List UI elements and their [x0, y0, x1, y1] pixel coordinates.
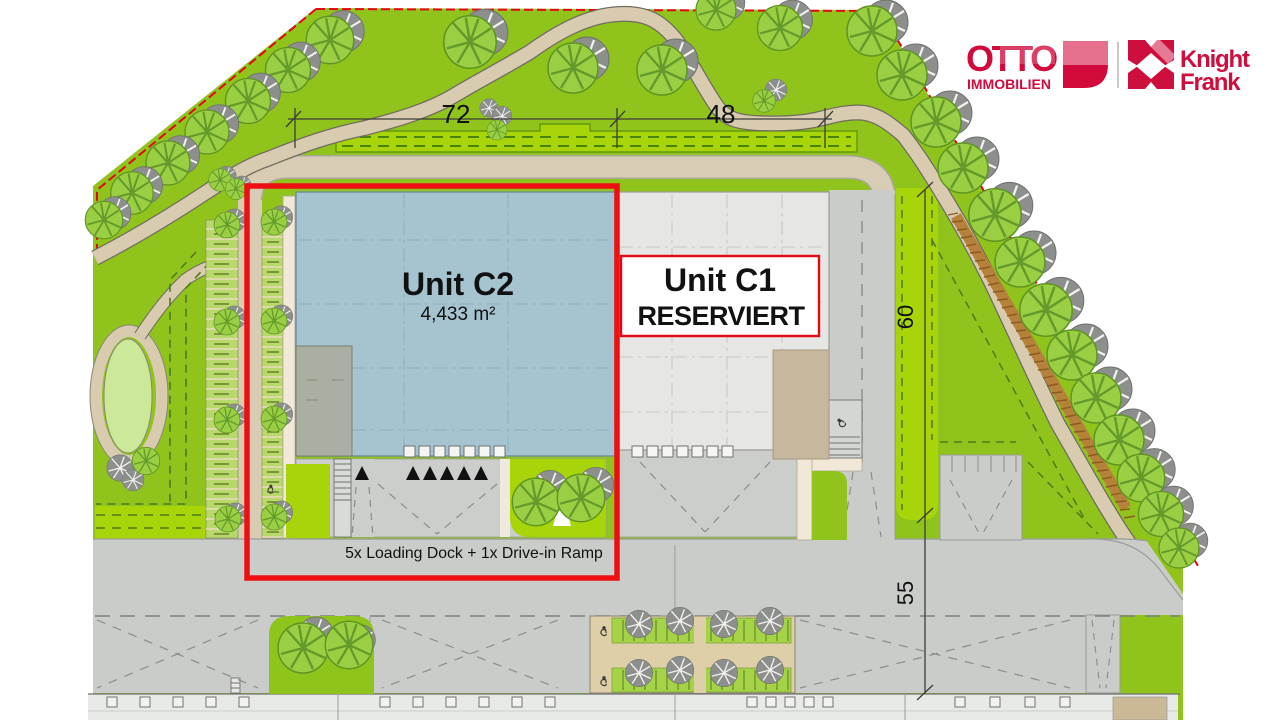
- svg-text:Unit C1: Unit C1: [664, 262, 776, 298]
- svg-text:Frank: Frank: [1180, 69, 1241, 96]
- svg-text:5x Loading Dock + 1x Drive-in: 5x Loading Dock + 1x Drive-in Ramp: [345, 545, 603, 562]
- svg-text:72: 72: [442, 99, 471, 129]
- svg-text:55: 55: [893, 581, 918, 605]
- svg-text:4,433 m²: 4,433 m²: [421, 304, 496, 325]
- svg-text:60: 60: [893, 305, 918, 329]
- svg-text:Unit C2: Unit C2: [402, 266, 514, 302]
- svg-text:RESERVIERT: RESERVIERT: [637, 301, 805, 331]
- svg-text:48: 48: [707, 99, 736, 129]
- svg-text:IMMOBILIEN: IMMOBILIEN: [967, 76, 1051, 92]
